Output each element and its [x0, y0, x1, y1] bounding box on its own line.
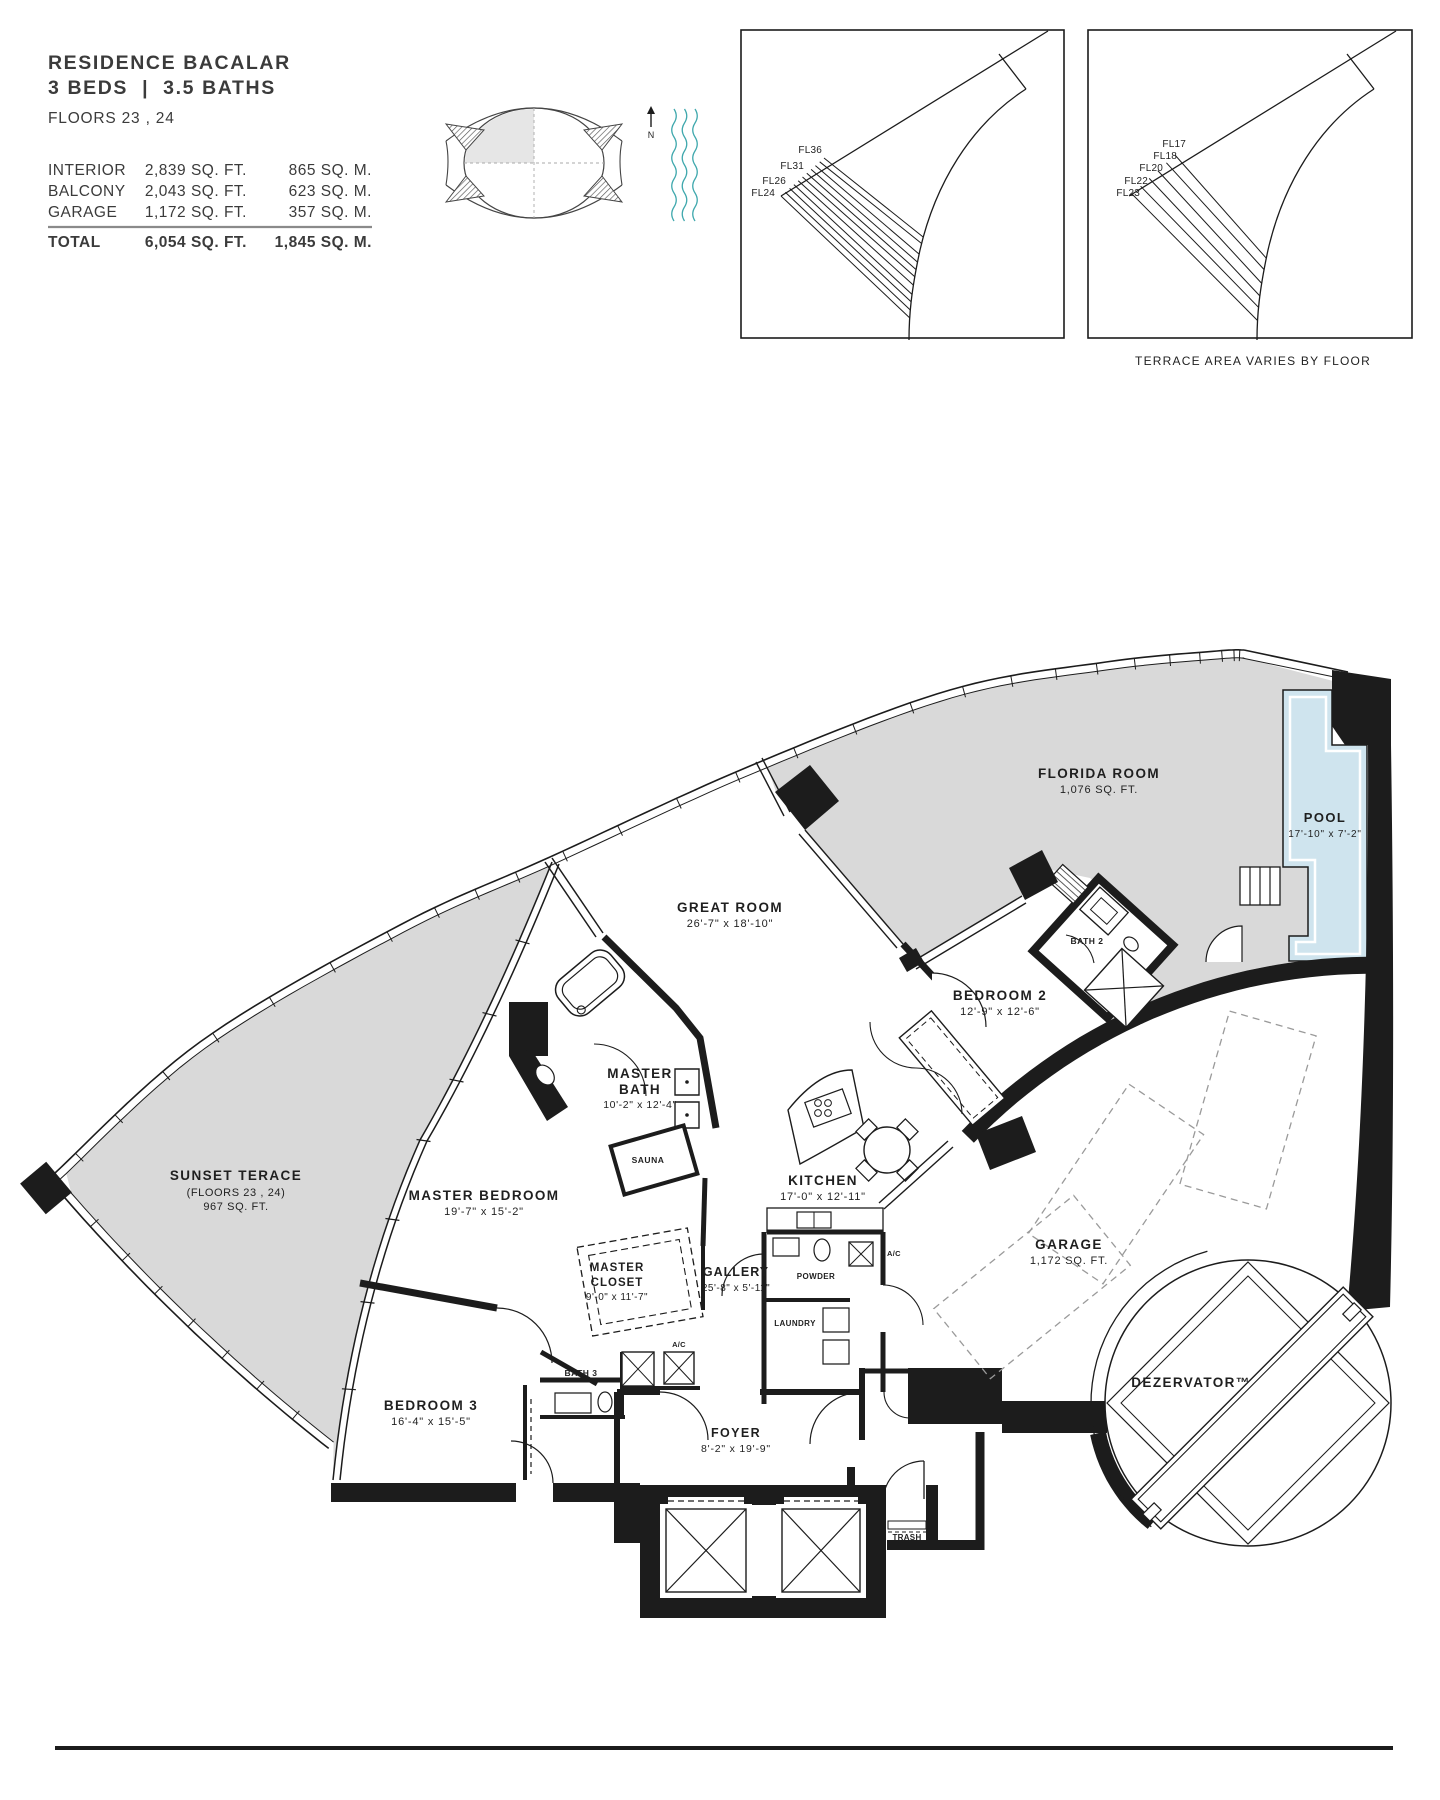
svg-text:1,845 SQ. M.: 1,845 SQ. M. [275, 234, 372, 251]
svg-text:POWDER: POWDER [797, 1272, 835, 1281]
svg-text:12'-9" x 12'-6": 12'-9" x 12'-6" [960, 1006, 1040, 1018]
svg-text:FL18: FL18 [1153, 151, 1177, 162]
svg-text:1,172 SQ. FT.: 1,172 SQ. FT. [1030, 1255, 1108, 1267]
svg-text:GALLERY: GALLERY [703, 1265, 769, 1279]
svg-text:16'-4" x 15'-5": 16'-4" x 15'-5" [391, 1416, 471, 1428]
svg-text:357 SQ. M.: 357 SQ. M. [289, 204, 372, 221]
svg-text:FL23: FL23 [1116, 188, 1140, 199]
svg-text:BEDROOM 2: BEDROOM 2 [953, 988, 1047, 1003]
svg-text:1,076 SQ. FT.: 1,076 SQ. FT. [1060, 784, 1138, 796]
svg-text:FL17: FL17 [1162, 139, 1186, 150]
svg-text:N: N [648, 130, 655, 140]
svg-text:FLOORS 23 , 24: FLOORS 23 , 24 [48, 110, 175, 127]
svg-text:FL24: FL24 [751, 188, 775, 199]
svg-text:BATH: BATH [619, 1082, 661, 1097]
svg-text:FL31: FL31 [780, 161, 804, 172]
svg-text:KITCHEN: KITCHEN [788, 1173, 858, 1188]
svg-text:19'-7" x 15'-2": 19'-7" x 15'-2" [444, 1206, 524, 1218]
svg-text:865 SQ. M.: 865 SQ. M. [289, 162, 372, 179]
svg-text:TERRACE AREA VARIES BY FLOOR: TERRACE AREA VARIES BY FLOOR [1135, 354, 1371, 368]
svg-text:CLOSET: CLOSET [591, 1277, 644, 1289]
svg-text:3 BEDS | 3.5 BATHS: 3 BEDS | 3.5 BATHS [48, 77, 276, 99]
svg-text:MASTER: MASTER [607, 1066, 672, 1081]
svg-text:BALCONY: BALCONY [48, 183, 126, 200]
svg-text:(FLOORS 23 , 24): (FLOORS 23 , 24) [187, 1187, 286, 1199]
svg-text:623 SQ. M.: 623 SQ. M. [289, 183, 372, 200]
svg-text:SUNSET TERACE: SUNSET TERACE [170, 1168, 302, 1183]
svg-text:8'-2" x 19'-9": 8'-2" x 19'-9" [701, 1443, 771, 1455]
svg-text:FOYER: FOYER [711, 1426, 761, 1440]
svg-text:FL22: FL22 [1124, 176, 1148, 187]
svg-text:MASTER: MASTER [590, 1262, 645, 1274]
svg-text:9'-0" x 11'-7": 9'-0" x 11'-7" [586, 1292, 648, 1303]
svg-text:RESIDENCE BACALAR: RESIDENCE BACALAR [48, 52, 291, 74]
svg-text:10'-2" x 12'-4": 10'-2" x 12'-4" [603, 1099, 677, 1111]
svg-text:26'-7" x 18'-10": 26'-7" x 18'-10" [687, 918, 774, 930]
svg-text:FL26: FL26 [762, 176, 786, 187]
svg-text:BATH 2: BATH 2 [1070, 936, 1103, 946]
svg-text:GREAT ROOM: GREAT ROOM [677, 900, 783, 915]
svg-text:DEZERVATOR™: DEZERVATOR™ [1131, 1375, 1250, 1390]
svg-text:6,054 SQ. FT.: 6,054 SQ. FT. [145, 234, 247, 251]
svg-text:1,172 SQ. FT.: 1,172 SQ. FT. [145, 204, 247, 221]
svg-text:LAUNDRY: LAUNDRY [774, 1319, 816, 1328]
svg-text:FL36: FL36 [798, 145, 822, 156]
svg-text:FL20: FL20 [1139, 163, 1163, 174]
svg-text:POOL: POOL [1304, 810, 1346, 825]
svg-text:2,043 SQ. FT.: 2,043 SQ. FT. [145, 183, 247, 200]
svg-text:GARAGE: GARAGE [1035, 1237, 1103, 1252]
svg-text:BATH 3: BATH 3 [564, 1368, 597, 1378]
svg-text:2,839 SQ. FT.: 2,839 SQ. FT. [145, 162, 247, 179]
svg-text:TOTAL: TOTAL [48, 234, 101, 251]
svg-text:25'-8" x 5'-11": 25'-8" x 5'-11" [702, 1283, 770, 1294]
svg-text:17'-0" x 12'-11": 17'-0" x 12'-11" [780, 1191, 866, 1203]
svg-text:967 SQ. FT.: 967 SQ. FT. [203, 1201, 268, 1213]
svg-text:17'-10" x 7'-2": 17'-10" x 7'-2" [1288, 829, 1362, 840]
svg-text:MASTER BEDROOM: MASTER BEDROOM [409, 1188, 560, 1203]
svg-text:FLORIDA ROOM: FLORIDA ROOM [1038, 766, 1160, 781]
svg-text:GARAGE: GARAGE [48, 204, 117, 221]
svg-text:TRASH: TRASH [892, 1533, 921, 1542]
svg-text:BEDROOM 3: BEDROOM 3 [384, 1398, 478, 1413]
svg-text:A/C: A/C [887, 1249, 901, 1258]
svg-text:INTERIOR: INTERIOR [48, 162, 126, 179]
svg-text:A/C: A/C [672, 1340, 686, 1349]
svg-text:SAUNA: SAUNA [632, 1155, 665, 1165]
